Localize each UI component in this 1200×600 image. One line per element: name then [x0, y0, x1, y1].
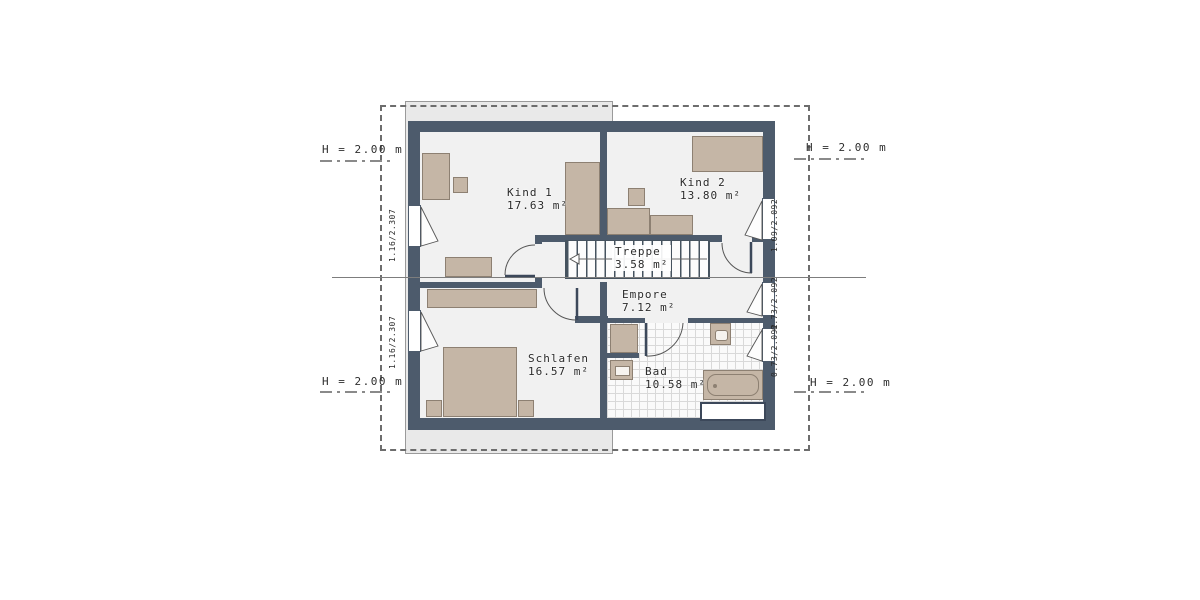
height-line-top-right	[794, 158, 868, 160]
fixture-toilet-bowl	[715, 330, 728, 341]
room-label-empore: Empore 7.12 m²	[622, 288, 675, 314]
room-label-schlafen: Schlafen 16.57 m²	[528, 352, 589, 378]
room-area-bad: 10.58 m²	[645, 378, 706, 391]
window-dim-right-2: 0.73/2.092	[770, 277, 779, 330]
furniture-schlafen-wardrobe	[427, 289, 537, 308]
window-dim-left-1: 1.16/2.307	[388, 209, 397, 262]
fixture-toilet	[710, 323, 731, 345]
room-area-schlafen: 16.57 m²	[528, 365, 589, 378]
room-area-kind2: 13.80 m²	[680, 189, 741, 202]
room-name-kind2: Kind 2	[680, 176, 741, 189]
height-label-bottom-left: H = 2.00 m	[322, 375, 403, 388]
room-label-bad: Bad 10.58 m²	[645, 365, 706, 391]
wall-stub-schlafen-bad	[600, 282, 607, 323]
corridor-left-of-stairs-floor	[542, 242, 565, 278]
corridor-right-of-stairs-floor	[710, 242, 763, 278]
room-name-treppe: Treppe	[615, 245, 668, 258]
furniture-kind1-wardrobe	[565, 162, 600, 235]
floor-plan-canvas: H = 2.00 m H = 2.00 m H = 2.00 m H = 2.0…	[0, 0, 1200, 600]
room-name-empore: Empore	[622, 288, 675, 301]
room-area-kind1: 17.63 m²	[507, 199, 568, 212]
window-dim-right-3: 0.73/2.092	[770, 324, 779, 377]
room-name-kind1: Kind 1	[507, 186, 568, 199]
window-bottom-bad	[700, 402, 766, 421]
furniture-kind2-bed	[692, 136, 763, 172]
height-label-top-right: H = 2.00 m	[806, 141, 887, 154]
room-area-treppe: 3.58 m²	[615, 258, 668, 271]
height-label-bottom-right: H = 2.00 m	[810, 376, 891, 389]
furniture-kind1-dresser	[445, 257, 492, 277]
furniture-kind1-bed	[422, 153, 450, 200]
door-opening-kind2	[722, 235, 752, 242]
window-left-1	[408, 205, 421, 247]
furniture-kind1-nightstand	[453, 177, 468, 193]
height-line-top-left	[320, 160, 392, 162]
window-dim-left-2: 1.16/2.307	[388, 316, 397, 369]
door-opening-bad	[645, 318, 688, 323]
room-label-kind2: Kind 2 13.80 m²	[680, 176, 741, 202]
fixture-bathtub	[703, 370, 763, 400]
room-label-treppe: Treppe 3.58 m²	[612, 245, 671, 271]
fixture-shower	[610, 324, 638, 353]
window-dim-right-1: 1.09/2.092	[770, 199, 779, 252]
section-line	[332, 277, 866, 278]
room-name-schlafen: Schlafen	[528, 352, 589, 365]
room-area-empore: 7.12 m²	[622, 301, 675, 314]
furniture-schlafen-nightstand-right	[518, 400, 534, 417]
room-name-bad: Bad	[645, 365, 706, 378]
furniture-kind2-desk-b	[650, 215, 693, 235]
furniture-schlafen-nightstand-left	[426, 400, 442, 417]
fixture-sink	[610, 360, 633, 380]
height-line-bottom-right	[794, 391, 868, 393]
fixture-bathtub-drain	[713, 384, 717, 388]
height-line-bottom-left	[320, 391, 392, 393]
room-label-kind1: Kind 1 17.63 m²	[507, 186, 568, 212]
height-label-top-left: H = 2.00 m	[322, 143, 403, 156]
fixture-sink-basin	[615, 366, 630, 376]
door-opening-kind1	[535, 244, 542, 278]
furniture-schlafen-bed	[443, 347, 517, 417]
wall-stub-shower	[605, 353, 639, 358]
furniture-kind2-box	[628, 188, 645, 206]
window-left-2	[408, 310, 421, 352]
furniture-kind2-desk-a	[607, 208, 650, 235]
